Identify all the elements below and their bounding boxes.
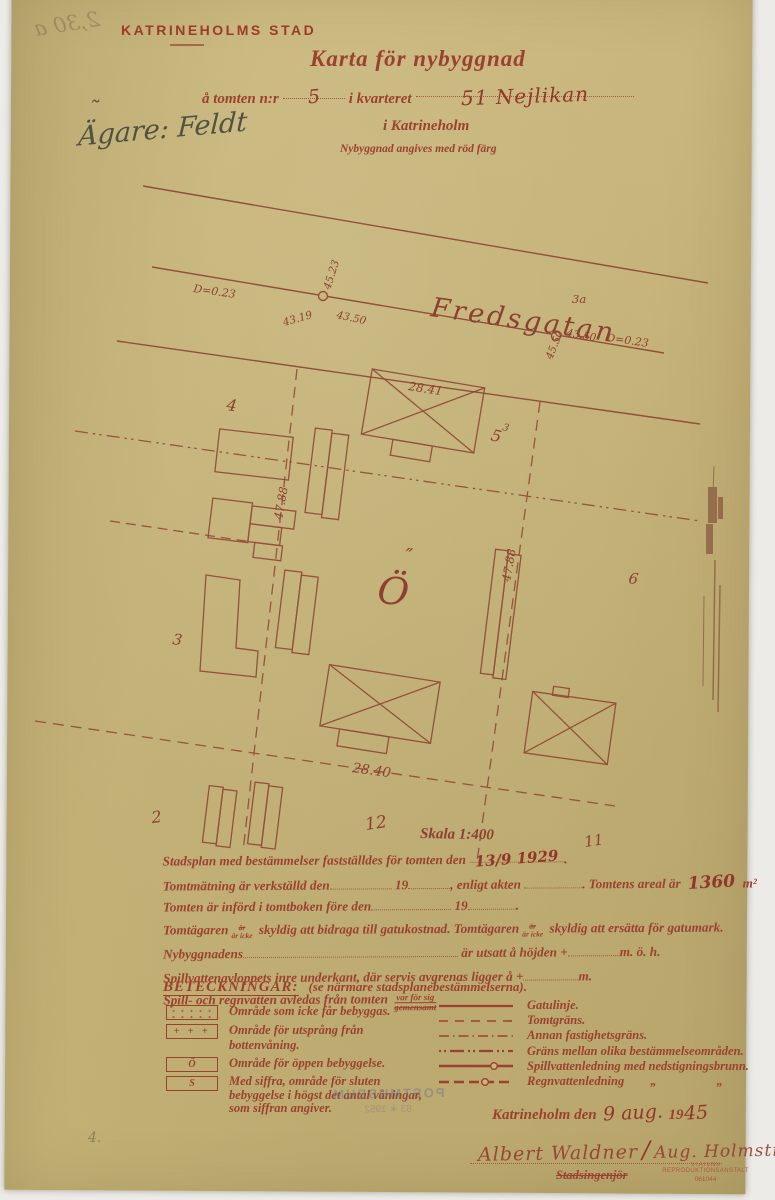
- form-line-tomtagaren: Tomtägarenärär icke skyldig att bidraga …: [163, 919, 738, 946]
- plot-label-11: 11: [583, 830, 604, 850]
- legend-title-row: BETECKNINGAR: (se närmare stadsplanebest…: [163, 978, 527, 996]
- plot2-buildings: [202, 777, 283, 853]
- plot-label-5-sup: 3: [501, 422, 510, 434]
- plot-boundary-short: [110, 521, 252, 542]
- manhole-1: [319, 292, 328, 301]
- date-handwritten: 13/9 1929: [474, 847, 559, 871]
- edge-marks: [703, 466, 723, 712]
- area-handwritten: 1360: [687, 871, 735, 894]
- legend-item-open: Ö Område för öppen bebyggelse.: [166, 1056, 434, 1072]
- museum-bleed-through: POSTMUSEUM 83 ∗ 1952: [328, 1085, 448, 1116]
- signer-role: Stadsingenjör: [556, 1168, 628, 1183]
- scale-label: Skala 1:400: [420, 826, 495, 843]
- form-line-tomtmatning: Tomtmätning är verkställd den 19, enligt…: [163, 872, 738, 899]
- plot-label-12: 12: [364, 812, 388, 835]
- open-area-icon: Ö: [166, 1057, 218, 1072]
- dot-dot-dash-line-icon: [437, 1047, 519, 1055]
- plot-boundary-left: [243, 369, 297, 852]
- plot-boundary-right: [477, 402, 540, 862]
- level-45-23: 45.23: [321, 258, 342, 292]
- legend-title: BETECKNINGAR:: [163, 979, 299, 996]
- buildings: [200, 369, 617, 853]
- narrow-pair-lower: [275, 570, 319, 655]
- legend-subtitle: (se närmare stadsplanebestämmelserna).: [309, 979, 527, 994]
- plot-label-6: 6: [627, 569, 639, 588]
- form-line-tomtboken: Tomten är införd i tomtboken före den 19…: [163, 895, 738, 922]
- form-line-nybyggnadens: Nybyggnadens är utsatt å höjden +m. ö. h…: [163, 942, 738, 969]
- legend-item-gatulinje: Gatulinje.: [437, 998, 767, 1013]
- dotted-area-icon: [166, 1005, 218, 1020]
- building-southeast: [524, 684, 617, 765]
- frontage-left-label: 47.88: [271, 486, 291, 522]
- pipe-dim-left: D=0.23: [192, 282, 237, 301]
- l-building-plot3: [200, 575, 258, 677]
- closed-area-icon: S: [166, 1076, 218, 1091]
- building-plot4: [215, 429, 293, 480]
- year-printed: 19: [669, 1107, 684, 1123]
- solid-line-manhole-icon: [437, 1061, 519, 1071]
- open-development-marks: ″: [403, 543, 414, 568]
- level-43-19: 43.19: [281, 309, 314, 329]
- map-labels: Fredsgatan D=0.23 D=0.23 43.19 45.23 43.…: [149, 258, 649, 851]
- building-2840: [317, 665, 440, 761]
- legend-item-spillvattenledning: Spillvattenledning med nedstigningsbrunn…: [437, 1059, 767, 1074]
- frontage-right-label: 47.88: [499, 548, 519, 584]
- building-len-2840: 28.40: [350, 760, 392, 781]
- cosignature-handwritten: Aug. Holmström: [654, 1140, 775, 1163]
- plot-boundary-bottom: [35, 721, 615, 806]
- zone-boundary: [75, 431, 700, 521]
- legend-item-fastighetsgrans: Annan fastighetsgräns.: [437, 1028, 767, 1043]
- scanned-map-sheet: 2,30 a KATRINEHOLMS STAD Karta för nybyg…: [0, 0, 775, 1200]
- plot-label-3: 3: [171, 630, 183, 649]
- sheet-content: 2,30 a KATRINEHOLMS STAD Karta för nybyg…: [0, 0, 775, 1200]
- level-43-50: 43.50: [334, 309, 367, 327]
- legend-item-regnvattenledning: Regnvattenledning „ „: [437, 1074, 767, 1089]
- pencil-bottom-mark: 4.: [88, 1130, 101, 1146]
- open-development-symbol: Ö: [375, 567, 412, 615]
- solid-line-icon: [437, 1002, 519, 1010]
- legend-item-projection: + + + Område för utsprång från bottenvån…: [166, 1023, 434, 1053]
- boundary-lines: [35, 369, 700, 862]
- year-handwritten: 45: [683, 1101, 708, 1124]
- form-line-stadsplan: Stadsplan med bestämmelser fastställdes …: [163, 848, 738, 875]
- legend-item-tomtgrans: Tomtgräns.: [437, 1013, 767, 1028]
- legend-item-bestammelse: Gräns mellan olika bestämmelseområden.: [437, 1044, 767, 1059]
- plot-label-2: 2: [149, 807, 162, 827]
- reproduction-stamp: STATENS REPRODUKTIONSANSTALT 061044: [648, 1162, 763, 1183]
- dash-dot-line-icon: [437, 1032, 519, 1040]
- street-line-north: [143, 186, 708, 283]
- plot-label-4: 4: [224, 395, 238, 415]
- date-line: Katrineholm den 9 aug. 1945: [492, 1102, 708, 1124]
- dashed-line-icon: [437, 1017, 519, 1025]
- house-number-3a: 3a: [572, 292, 586, 306]
- building-len-2841: 28.41: [407, 379, 444, 398]
- signature-divider: ∕: [642, 1136, 651, 1164]
- narrow-pair-upper: [305, 428, 349, 519]
- legend-item-no-build: Område som icke får bebyggas.: [166, 1004, 434, 1020]
- date-day-handwritten: 9 aug.: [602, 1100, 663, 1125]
- legend-right-column: Gatulinje. Tomtgräns. Annan fastighetsgr…: [437, 998, 767, 1089]
- plus-area-icon: + + +: [166, 1024, 218, 1039]
- dashed-line-manhole-icon: [437, 1077, 519, 1087]
- place-printed: Katrineholm den: [492, 1107, 597, 1123]
